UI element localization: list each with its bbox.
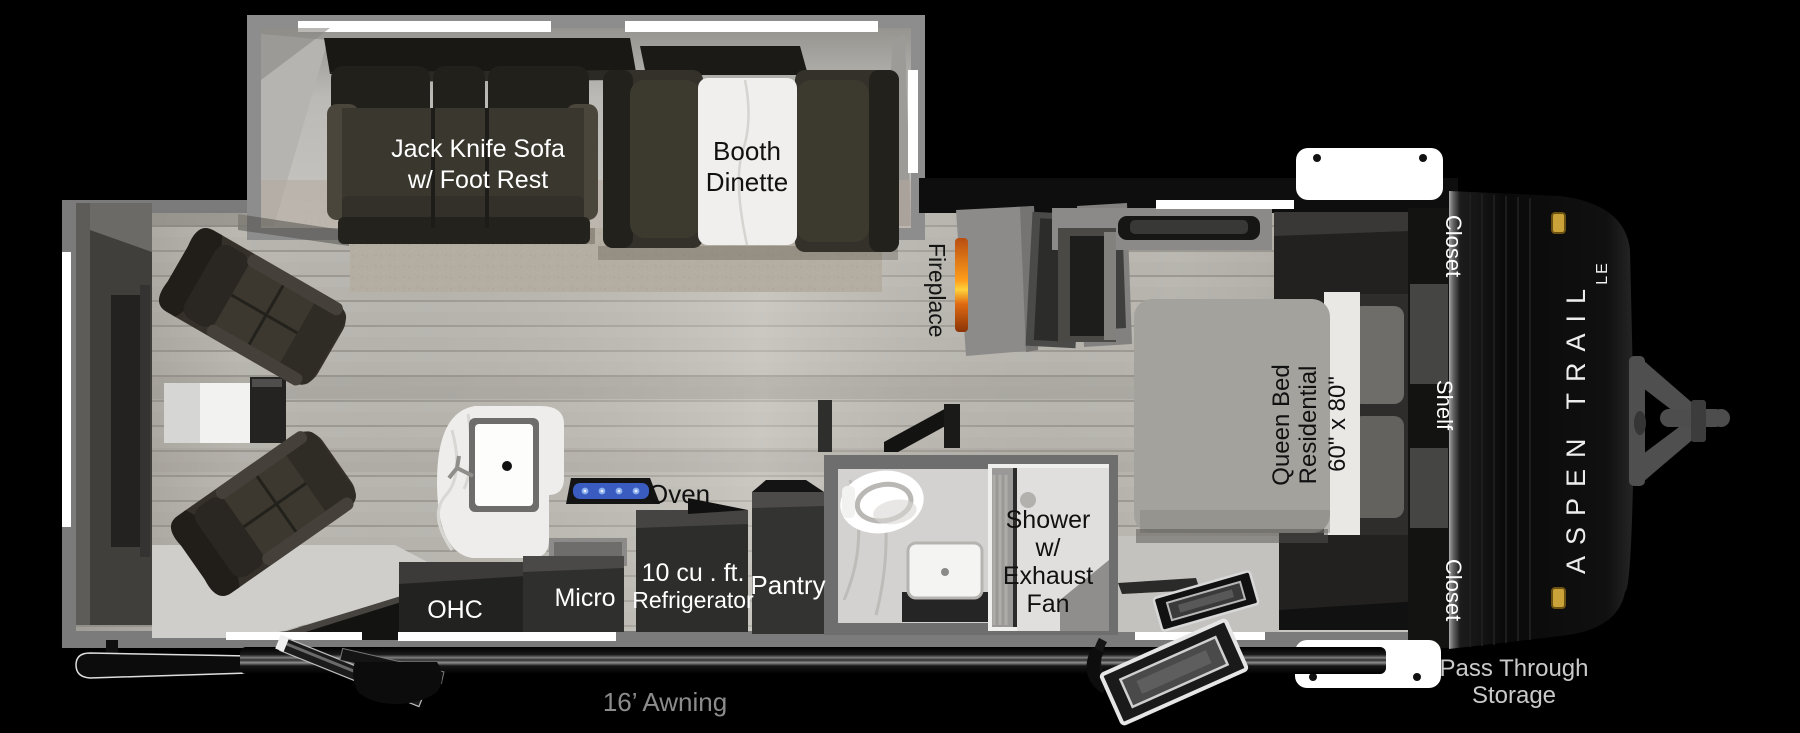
svg-text:Micro: Micro (554, 584, 615, 612)
svg-text:Dinette: Dinette (706, 167, 788, 197)
svg-text:Shelf: Shelf (1432, 380, 1457, 431)
svg-text:OHC: OHC (427, 596, 483, 624)
svg-text:ASPEN TRAIL: ASPEN TRAIL (1561, 278, 1591, 574)
svg-text:Fireplace: Fireplace (924, 243, 950, 338)
svg-text:Jack Knife Sofa: Jack Knife Sofa (391, 135, 565, 163)
svg-text:Booth: Booth (713, 136, 781, 166)
svg-text:Oven: Oven (648, 479, 710, 509)
svg-text:10 cu . ft.: 10 cu . ft. (642, 559, 745, 587)
svg-text:Fan: Fan (1026, 590, 1069, 618)
svg-text:Pass Through: Pass Through (1440, 655, 1589, 682)
svg-text:LE: LE (1594, 261, 1611, 285)
svg-text:Closet: Closet (1441, 559, 1466, 621)
svg-text:Shower: Shower (1006, 506, 1091, 534)
svg-text:Refrigerator: Refrigerator (632, 587, 754, 613)
svg-text:Exhaust: Exhaust (1003, 562, 1093, 590)
svg-text:16’ Awning: 16’ Awning (603, 687, 727, 717)
svg-text:Storage: Storage (1472, 682, 1556, 709)
svg-text:Pantry: Pantry (750, 570, 825, 600)
svg-text:Residential: Residential (1295, 366, 1322, 485)
svg-text:Closet: Closet (1441, 215, 1466, 277)
svg-text:w/ Foot Rest: w/ Foot Rest (407, 166, 548, 194)
svg-text:60" x 80": 60" x 80" (1324, 376, 1351, 472)
svg-text:Queen Bed: Queen Bed (1268, 364, 1295, 485)
svg-text:w/: w/ (1035, 534, 1061, 562)
